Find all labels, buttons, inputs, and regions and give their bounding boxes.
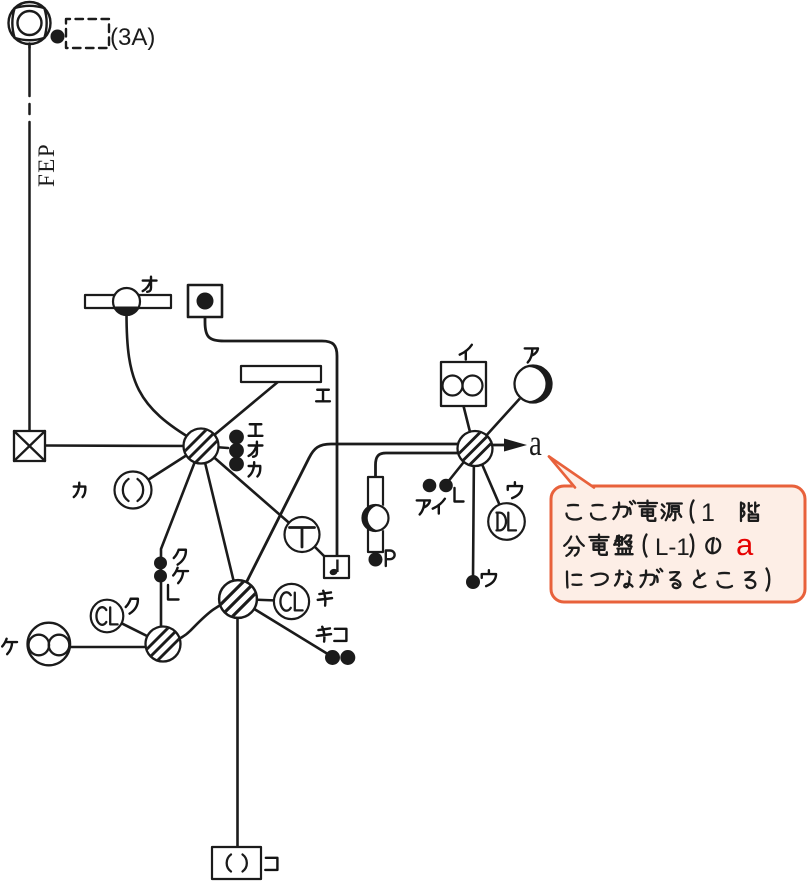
svg-text:(3A): (3A)	[110, 24, 155, 51]
svg-text:L-1: L-1	[655, 534, 690, 561]
svg-text:a: a	[736, 527, 754, 562]
svg-text:FEP: FEP	[34, 143, 59, 187]
svg-text:1: 1	[701, 499, 715, 527]
svg-text:a: a	[529, 423, 542, 464]
